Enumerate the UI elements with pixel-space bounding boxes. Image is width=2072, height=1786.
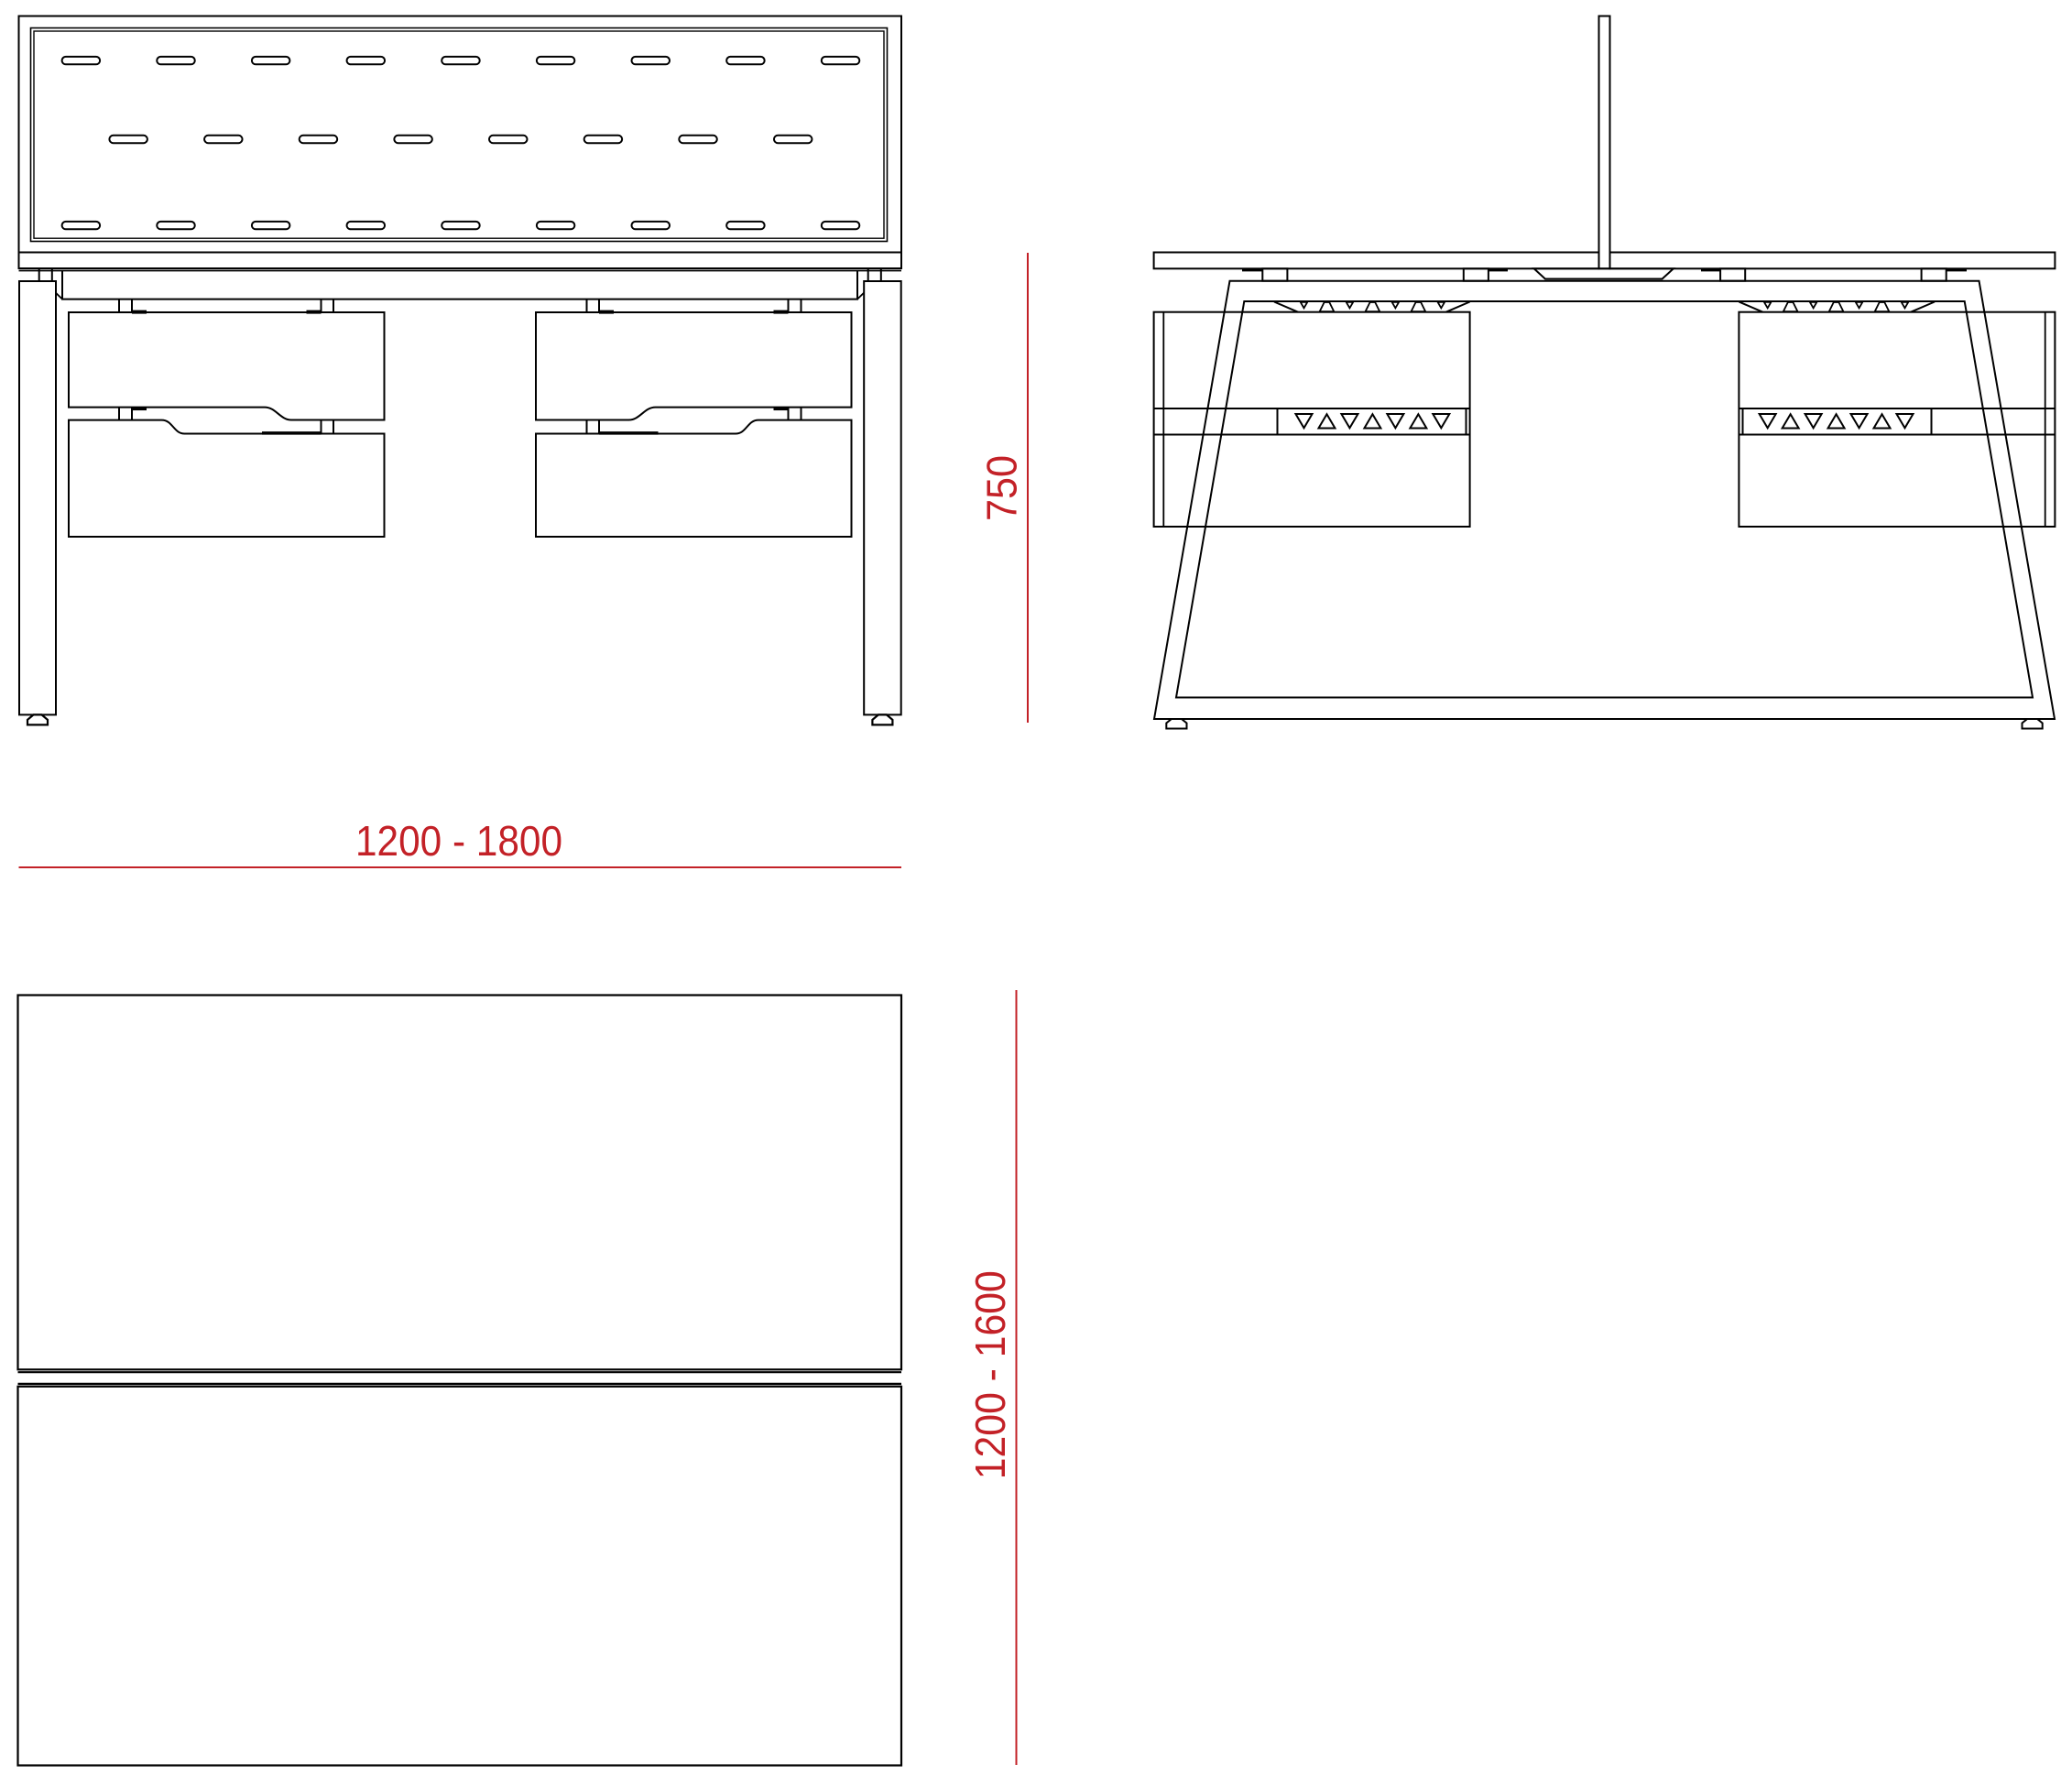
svg-text:750: 750 [977,455,1025,521]
svg-text:1200 - 1600: 1200 - 1600 [966,1270,1014,1479]
svg-text:1200 - 1800: 1200 - 1800 [355,817,562,865]
